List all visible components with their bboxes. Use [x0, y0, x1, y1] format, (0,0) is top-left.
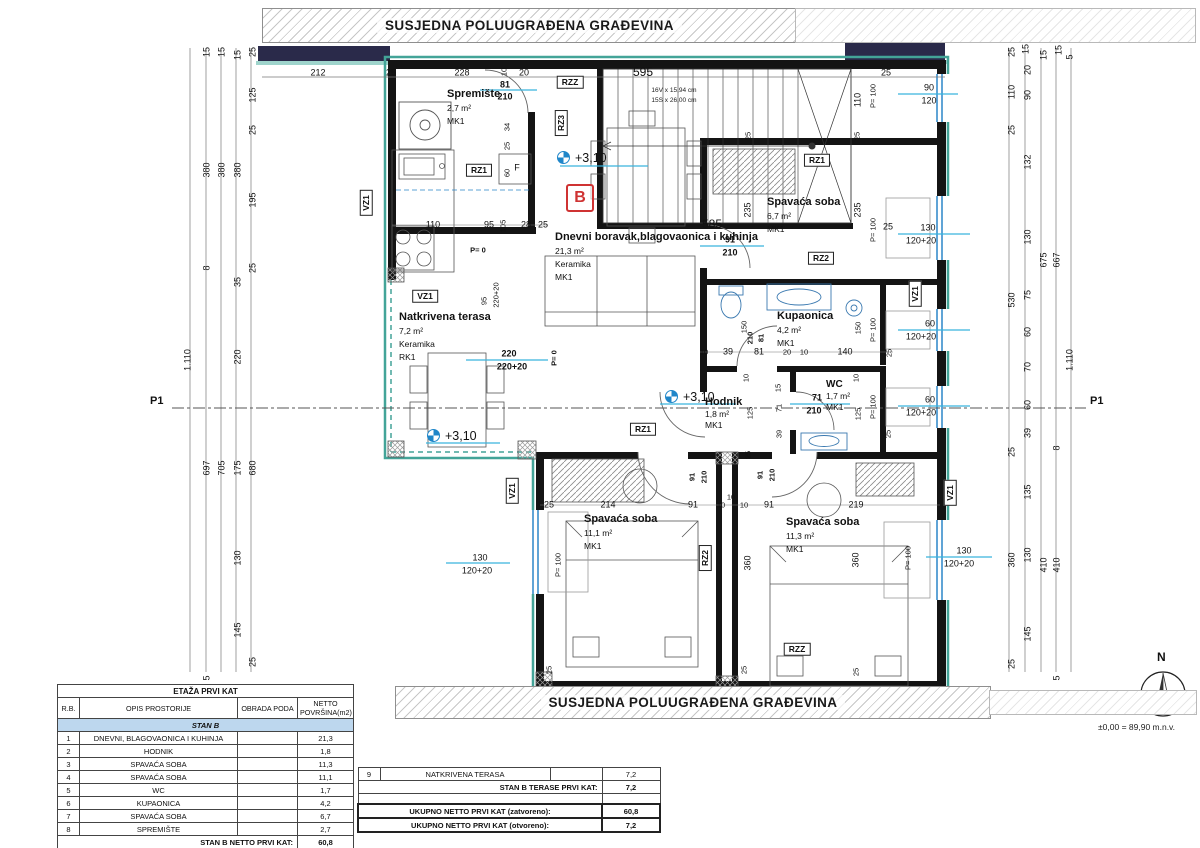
dim-label: 120 [921, 97, 936, 106]
doors [485, 70, 834, 504]
dim-label: 228 [454, 69, 469, 78]
table-row: 6KUPAONICA4,2 [58, 797, 354, 810]
dim-label: 1.110 [1066, 349, 1075, 371]
section-row: STAN B [58, 719, 354, 732]
dim-label: 25 [1008, 659, 1017, 669]
dim-label: 105 [499, 220, 507, 233]
insulation-contour [385, 57, 948, 692]
dim-label: 110 [426, 221, 440, 230]
dim-label: 25 [503, 142, 511, 150]
dim-label: 380 [203, 162, 212, 177]
dim-label: 60 [925, 396, 935, 405]
terase-value: 7,2 [602, 781, 660, 794]
row-name: HODNIK [80, 745, 238, 758]
dim-label: 90 [1024, 90, 1033, 100]
row-area: 11,3 [298, 758, 354, 771]
col-header: OPIS PROSTORIJE [80, 698, 238, 719]
dim-label: F [514, 164, 520, 173]
dim-label: 140 [837, 348, 852, 357]
dim-label: 10 [500, 68, 508, 76]
dim-label: 145 [234, 622, 243, 637]
dim-label: 15 [1055, 45, 1064, 55]
room-mark: MK1 [584, 541, 657, 551]
dim-label: 5 [1053, 675, 1062, 680]
table-row: 7SPAVAĆA SOBA6,7 [58, 810, 354, 823]
dim-label: 410 [1053, 557, 1062, 572]
row-num: 9 [358, 768, 380, 781]
dim-label: 130 [1024, 547, 1033, 562]
dim-label: 60 [1024, 400, 1033, 410]
ref-tag: RZ3 [555, 110, 568, 136]
dim-label: 15 [1022, 44, 1031, 54]
room-name: Kupaonica [777, 310, 833, 322]
dim-label: 125 [854, 408, 862, 421]
dim-label: 120+20 [462, 567, 492, 576]
row-name: SPAVAĆA SOBA [80, 810, 238, 823]
dim-label: 39 [775, 430, 783, 438]
room-mark: RK1 [399, 352, 491, 362]
room-label-kupaonica: Kupaonica 4,2 m² MK1 [777, 310, 833, 348]
dim-label: P= 100 [869, 84, 877, 108]
room-mark: MK1 [705, 420, 742, 430]
level-value: +3,10 [575, 151, 607, 165]
neighbor-banner-bottom: SUSJEDNA POLUUGRAĐENA GRAĐEVINA [395, 686, 991, 719]
table-total-row: STAN B NETTO PRVI KAT: 60,8 [58, 836, 354, 848]
dim-label: 214 [600, 501, 615, 510]
armchair-icon [807, 483, 841, 517]
room-finish: Keramika [555, 259, 758, 269]
ref-tag: RZ2 [699, 545, 712, 571]
zatvoreno-label: UKUPNO NETTO PRVI KAT (zatvoreno): [358, 804, 602, 818]
ref-tag: RZ2 [808, 252, 834, 265]
room-area: 1,7 m² [826, 391, 850, 401]
room-name: Spavaća soba [584, 513, 657, 525]
dim-label: 25 [545, 666, 553, 674]
dim-label: 28 [521, 221, 531, 230]
interior-walls [388, 69, 946, 688]
section-mark-right: P1 [1090, 395, 1103, 407]
ref-tag: RZ1 [466, 164, 492, 177]
room-name: Spavaća soba [767, 196, 840, 208]
dim-label: 210 [806, 407, 821, 416]
dim-label: 71 [775, 404, 783, 412]
row-num: 1 [58, 732, 80, 745]
room-name: Spremište [447, 88, 500, 100]
dim-label: 10 [740, 501, 748, 509]
dim-label: 135 [1024, 484, 1033, 499]
dim-label: 91 [756, 471, 764, 479]
dim-label: 220 [234, 349, 243, 364]
level-value: +3,10 [683, 390, 715, 404]
dim-label: 410 [1040, 557, 1049, 572]
table-row: 8SPREMIŠTE2,7 [58, 823, 354, 836]
total-label: STAN B NETTO PRVI KAT: [58, 836, 298, 848]
row-name: SPAVAĆA SOBA [80, 758, 238, 771]
dim-label: 705 [218, 460, 227, 475]
level-marker-icon [426, 428, 441, 443]
dim-label: 212 [310, 69, 325, 78]
room-label-terasa: Natkrivena terasa 7,2 m² Keramika RK1 [399, 311, 491, 362]
dim-label: 585 [702, 218, 722, 230]
room-area: 2,7 m² [447, 103, 500, 113]
dim-label: 675 [1040, 252, 1049, 267]
dim-label: 25 [249, 657, 258, 667]
room-area: 6,7 m² [767, 211, 840, 221]
neighbor-banner-top: SUSJEDNA POLUUGRAĐENA GRAĐEVINA [262, 8, 797, 43]
dim-label: 132 [1024, 154, 1033, 169]
dim-label: 110 [1008, 85, 1017, 99]
dim-label: 120+20 [906, 237, 936, 246]
dim-label: 60 [1024, 327, 1033, 337]
dim-label: 39 [1024, 428, 1033, 438]
room-area: 4,2 m² [777, 325, 833, 335]
dim-label: 8 [1053, 445, 1062, 450]
row-area: 1,7 [298, 784, 354, 797]
dim-label: P= 0 [550, 350, 558, 366]
row-name: WC [80, 784, 238, 797]
table-row: 2HODNIK1,8 [58, 745, 354, 758]
room-name: Natkrivena terasa [399, 311, 491, 323]
row-num: 4 [58, 771, 80, 784]
dim-label: 25 [881, 69, 891, 78]
room-label-spremiste: Spremište 2,7 m² MK1 [447, 88, 500, 126]
ref-tag: RZZ [784, 643, 811, 656]
room-name: WC [826, 379, 850, 390]
dim-label: 75 [1024, 290, 1033, 300]
row-area: 11,1 [298, 771, 354, 784]
row-num: 6 [58, 797, 80, 810]
table-row: 1DNEVNI, BLAGOVAONICA I KUHINJA21,3 [58, 732, 354, 745]
row-area: 7,2 [602, 768, 660, 781]
room-label-wc: WC 1,7 m² MK1 [826, 379, 850, 412]
room-area: 1,8 m² [705, 409, 742, 419]
dim-label: 130 [920, 224, 935, 233]
dim-label: 25 [544, 501, 554, 510]
stair-riser-text: 16V x 15,94 cm [628, 86, 720, 96]
section-mark-left: P1 [150, 395, 163, 407]
room-mark: MK1 [555, 272, 758, 282]
ref-tag: VZ1 [944, 480, 957, 506]
dim-label: 39 [723, 348, 733, 357]
dim-label: 25 [249, 263, 258, 273]
dim-label: 680 [249, 460, 258, 475]
col-header: NETTO POVRŠINA(m2) [298, 698, 354, 719]
dim-label: 10 [727, 493, 735, 501]
room-label-spavaca-111: Spavaća soba 11,1 m² MK1 [584, 513, 657, 551]
level-marker: +3,10 [664, 389, 715, 404]
dim-label: 210 [497, 93, 512, 102]
dim-label: 25 [852, 668, 860, 676]
table-total-row: STAN B TERASE PRVI KAT: 7,2 [358, 781, 660, 794]
row-num: 3 [58, 758, 80, 771]
dim-label: 25 [386, 69, 396, 78]
room-name: Spavaća soba [786, 516, 859, 528]
row-name: NATKRIVENA TERASA [380, 768, 550, 781]
dim-label: 380 [218, 162, 227, 177]
dim-label: 91 [764, 501, 774, 510]
row-num: 5 [58, 784, 80, 797]
stair-note: 16V x 15,94 cm 15S x 26,00 cm [628, 86, 720, 106]
dim-label: 91 [688, 501, 698, 510]
dim-label: 25 [740, 666, 748, 674]
dim-label: 235 [744, 202, 753, 217]
dim-label: 120+20 [906, 409, 936, 418]
dim-label: 20 [519, 69, 529, 78]
dim-label: 125 [746, 407, 754, 420]
dim-label: 360 [852, 552, 861, 567]
dim-label: 20 [1024, 65, 1033, 75]
dim-label: 15 [203, 47, 212, 57]
col-header: OBRADA PODA [238, 698, 298, 719]
row-area: 4,2 [298, 797, 354, 810]
dim-label: 5 [1066, 54, 1075, 59]
dim-label: 220+20 [492, 282, 500, 307]
dim-label: 35 [234, 277, 243, 287]
room-label-spavaca-113: Spavaća soba 11,3 m² MK1 [786, 516, 859, 554]
dim-label: 25 [744, 451, 752, 459]
dim-label: 90 [924, 84, 934, 93]
dim-label: 210 [746, 332, 754, 345]
dim-label: 380 [234, 162, 243, 177]
window [886, 196, 950, 260]
table-row: 3SPAVAĆA SOBA11,3 [58, 758, 354, 771]
dim-label: 10 [852, 374, 860, 382]
dim-label: P= 100 [904, 546, 912, 570]
ref-tag: RZZ [557, 76, 584, 89]
spacer-row [358, 794, 660, 805]
ref-tag: RZ1 [804, 154, 830, 167]
dim-label: 91 [688, 473, 696, 481]
otvoreno-label: UKUPNO NETTO PRVI KAT (otvoreno): [358, 818, 602, 832]
room-area: 7,2 m² [399, 326, 491, 336]
elevation-note: ±0,00 = 89,90 m.n.v. [1098, 722, 1175, 732]
dim-label: 25 [1008, 125, 1017, 135]
dim-label: 25 [884, 430, 892, 438]
ref-tag: RZ1 [630, 423, 656, 436]
dim-label: 175 [234, 460, 243, 475]
dim-label: 10 [800, 348, 808, 356]
dim-label: 667 [1053, 252, 1062, 267]
area-table: ETAŽA PRVI KAT R.B. OPIS PROSTORIJE OBRA… [57, 684, 354, 848]
ref-tag: VZ1 [412, 290, 438, 303]
dim-label: 25 [1008, 47, 1017, 57]
dim-label: 220+20 [497, 363, 527, 372]
dim-label: P= 100 [554, 553, 562, 577]
dim-label: 95 [480, 297, 488, 305]
row-area: 2,7 [298, 823, 354, 836]
dim-label: 120+20 [906, 333, 936, 342]
ref-tag: VZ1 [909, 281, 922, 307]
dim-label: 120+20 [944, 560, 974, 569]
ref-tag: VZ1 [506, 478, 519, 504]
row-area: 6,7 [298, 810, 354, 823]
row-area: 21,3 [298, 732, 354, 745]
table-row: 9 NATKRIVENA TERASA 7,2 [358, 768, 660, 781]
room-label-spavaca-67: Spavaća soba 6,7 m² MK1 [767, 196, 840, 234]
dim-label: 145 [1024, 626, 1033, 641]
dim-label: 25 [883, 223, 893, 232]
neighbor-banner-top-extension [795, 8, 1196, 43]
dim-label: 91 [725, 236, 735, 245]
exterior-walls [388, 60, 946, 690]
dim-label: 70 [1024, 362, 1033, 372]
neighbor-banner-bottom-extension [989, 690, 1197, 715]
level-value: +3,10 [445, 429, 477, 443]
otvoreno-value: 7,2 [602, 818, 660, 832]
dim-label: 125 [249, 87, 258, 102]
dim-label: 219 [848, 501, 863, 510]
room-mark: MK1 [786, 544, 859, 554]
level-marker: +3,10 [556, 150, 607, 165]
dim-label: 25 [885, 349, 893, 357]
dim-label: P= 0 [470, 246, 486, 254]
level-marker-icon [556, 150, 571, 165]
dim-label: 10 [742, 374, 750, 382]
room-finish: Keramika [399, 339, 491, 349]
dim-label: 95 [484, 221, 494, 230]
dim-label: 60 [503, 169, 511, 177]
table-row: 5WC1,7 [58, 784, 354, 797]
table-row: 4SPAVAĆA SOBA11,1 [58, 771, 354, 784]
washing-machine-icon [399, 102, 451, 149]
dim-label: 25 [249, 47, 258, 57]
dim-label: 60 [925, 320, 935, 329]
room-area: 11,3 m² [786, 531, 859, 541]
row-name: DNEVNI, BLAGOVAONICA I KUHINJA [80, 732, 238, 745]
dim-label: 5 [203, 675, 212, 680]
dim-label: 210 [722, 249, 737, 258]
row-num: 7 [58, 810, 80, 823]
dim-label: P= 100 [869, 318, 877, 342]
dim-label: 110 [854, 93, 863, 107]
dim-label: 81 [500, 81, 510, 90]
dim-label: 360 [744, 555, 753, 570]
floor-plan-page: SUSJEDNA POLUUGRAĐENA GRAĐEVINA SUSJEDNA… [0, 0, 1200, 848]
dim-label: 34 [503, 123, 511, 131]
dim-label: 25 [249, 125, 258, 135]
dim-label: 130 [234, 550, 243, 565]
row-num: 2 [58, 745, 80, 758]
dim-label: 81 [754, 348, 764, 357]
dim-label: 10 [717, 501, 725, 509]
room-mark: MK1 [826, 402, 850, 412]
dim-label: 25 [853, 132, 861, 140]
dim-label: 530 [1008, 292, 1017, 307]
dim-label: 697 [203, 460, 212, 475]
dim-label: 25 [744, 132, 752, 140]
table-total-row: UKUPNO NETTO PRVI KAT (otvoreno): 7,2 [358, 818, 660, 832]
neighbor-banner-bottom-text: SUSJEDNA POLUUGRAĐENA GRAĐEVINA [541, 695, 846, 710]
dim-label: 25 [538, 221, 548, 230]
row-num: 8 [58, 823, 80, 836]
stair-tread-text: 15S x 26,00 cm [628, 96, 720, 106]
dim-label: 15 [774, 384, 782, 392]
dim-label: P= 100 [869, 395, 877, 419]
dim-label: 8 [203, 265, 212, 270]
dim-label: 71 [812, 394, 822, 403]
total-value: 60,8 [298, 836, 354, 848]
row-name: SPAVAĆA SOBA [80, 771, 238, 784]
dim-label: 130 [956, 547, 971, 556]
level-marker: +3,10 [426, 428, 477, 443]
area-table-title: ETAŽA PRVI KAT [58, 685, 354, 698]
dim-label: 210 [768, 469, 776, 482]
window [528, 510, 588, 594]
dim-label: 220 [501, 350, 516, 359]
dim-label: 10 [700, 348, 708, 356]
dim-label: P= 100 [869, 218, 877, 242]
room-mark: MK1 [447, 116, 500, 126]
dim-label: 360 [1008, 552, 1017, 567]
bed-right [770, 546, 908, 686]
row-name: KUPAONICA [80, 797, 238, 810]
dim-label: 195 [249, 192, 258, 207]
row-area: 1,8 [298, 745, 354, 758]
table-total-row: UKUPNO NETTO PRVI KAT (zatvoreno): 60,8 [358, 804, 660, 818]
dim-label: 25 [1008, 447, 1017, 457]
dim-label: 130 [1024, 229, 1033, 244]
dim-label: 595 [633, 66, 653, 78]
terrace-table: 9 NATKRIVENA TERASA 7,2 STAN B TERASE PR… [357, 767, 661, 833]
row-name: SPREMIŠTE [80, 823, 238, 836]
apartment-b-marker: B [566, 184, 594, 212]
dim-label: 150 [854, 322, 862, 335]
dim-label: 235 [854, 202, 863, 217]
neighbor-banner-top-text: SUSJEDNA POLUUGRAĐENA GRAĐEVINA [377, 18, 682, 33]
dim-label: 15 [218, 47, 227, 57]
toilet-icon [719, 286, 743, 295]
dim-label: 15 [1040, 50, 1049, 60]
compass-north-label: N [1157, 650, 1166, 664]
shower-icon [846, 300, 862, 316]
zatvoreno-value: 60,8 [602, 804, 660, 818]
dim-label: 81 [757, 334, 765, 342]
dim-label: 20 [783, 348, 791, 356]
terase-label: STAN B TERASE PRVI KAT: [358, 781, 602, 794]
room-mark: MK1 [767, 224, 840, 234]
ref-tag: VZ1 [360, 190, 373, 216]
dim-label: 130 [472, 554, 487, 563]
dim-label: 1.110 [184, 349, 193, 371]
level-marker-icon [664, 389, 679, 404]
col-header: R.B. [58, 698, 80, 719]
dim-label: 15 [234, 50, 243, 60]
room-area: 11,1 m² [584, 528, 657, 538]
dim-label: 210 [700, 471, 708, 484]
